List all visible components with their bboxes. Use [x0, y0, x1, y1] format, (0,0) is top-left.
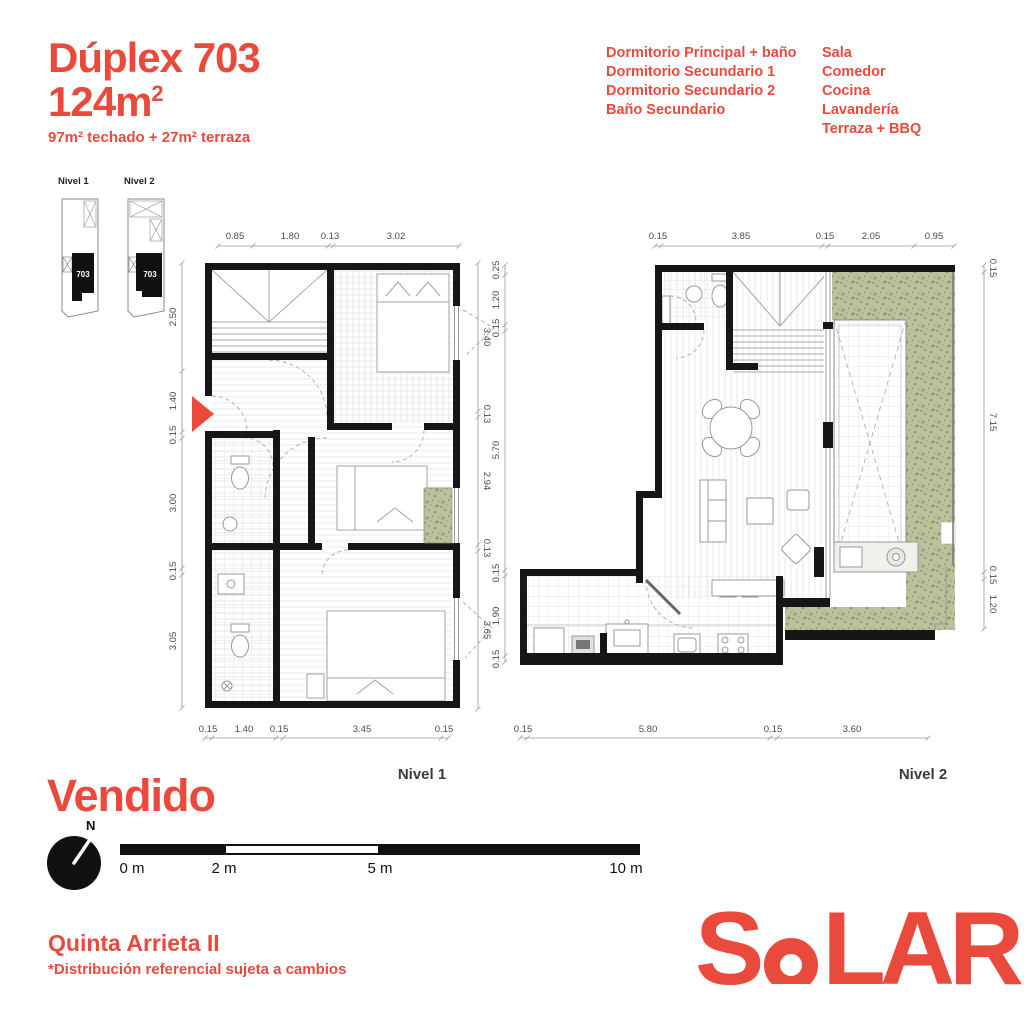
dim-label: 0.15	[764, 724, 783, 735]
feature-list-areas: Sala Comedor Cocina Lavandería Terraza +…	[822, 44, 1002, 139]
unit-number: 703	[76, 270, 90, 279]
feature-item: Lavandería	[822, 101, 1002, 120]
scale-bar: 0 m 2 m 5 m 10 m	[120, 844, 640, 878]
dim-label: 3.02	[387, 231, 406, 242]
logo-letter-s: S	[695, 905, 758, 994]
compass-icon: N	[42, 816, 110, 892]
feature-item: Comedor	[822, 63, 1002, 82]
key-plan-nivel1: Nivel 1 703	[58, 176, 104, 328]
scale-label: 2 m	[211, 860, 236, 877]
feature-item: Cocina	[822, 82, 1002, 101]
dim-label: 2.50	[168, 308, 179, 327]
dim-label: 5.70	[491, 441, 502, 460]
dim-label: 0.95	[925, 231, 944, 242]
bbq-counter	[834, 542, 918, 572]
solar-logo: S LAR	[695, 888, 1018, 994]
dim-label: 1.90	[491, 607, 502, 626]
dim-label: 3.45	[353, 724, 372, 735]
feature-item: Terraza + BBQ	[822, 120, 1002, 139]
area-subtitle: 97m² techado + 27m² terraza	[48, 129, 260, 146]
title-block: Dúplex 703 124m2 97m² techado + 27m² ter…	[48, 36, 260, 146]
project-block: Quinta Arrieta II *Distribución referenc…	[48, 930, 346, 978]
status-badge: Vendido	[47, 770, 215, 822]
scale-label: 5 m	[367, 860, 392, 877]
logo-sun-o-icon	[764, 938, 818, 992]
dim-label: 0.15	[987, 259, 998, 278]
dim-label: 5.80	[639, 724, 658, 735]
dim-label: 2.05	[862, 231, 881, 242]
dim-label: 0.25	[491, 261, 502, 280]
dim-label: 0.15	[491, 564, 502, 583]
dim-label: 1.80	[281, 231, 300, 242]
compass-north-label: N	[86, 818, 95, 833]
scale-label: 0 m	[119, 860, 144, 877]
floorplan-nivel2: 0.15 3.85 0.15 2.05 0.95 0.25 1.20 0.15 …	[488, 226, 1018, 796]
floorplan-nivel1: 0.85 1.80 0.13 3.02 2.50 1.40 0.15 3.00 …	[152, 226, 517, 796]
dim-label: 0.15	[199, 724, 218, 735]
feature-item: Baño Secundario	[606, 101, 816, 120]
dim-label: 1.40	[168, 392, 179, 411]
logo-letters-lar: LAR	[822, 905, 1018, 994]
dim-label: 3.60	[843, 724, 862, 735]
dim-label: 0.15	[270, 724, 289, 735]
feature-item: Dormitorio Secundario 1	[606, 63, 816, 82]
dim-label: 1.40	[235, 724, 254, 735]
dim-label: 0.15	[168, 562, 179, 581]
scale-segment	[380, 844, 640, 855]
dim-label: 0.15	[491, 650, 502, 669]
terrace-deck	[834, 320, 906, 566]
scale-segment	[224, 844, 380, 855]
feature-list-rooms: Dormitorio Principal + baño Dormitorio S…	[606, 44, 816, 120]
dim-label: 7.15	[987, 413, 998, 432]
scale-segment	[120, 844, 224, 855]
key-plan-nivel1-drawing: 703	[58, 191, 104, 323]
floorplan-sheet: Dúplex 703 124m2 97m² techado + 27m² ter…	[0, 0, 1024, 1024]
dim-label: 0.15	[514, 724, 533, 735]
scale-label: 10 m	[609, 860, 642, 877]
dim-label: 0.15	[649, 231, 668, 242]
key-plan-label: Nivel 2	[124, 176, 170, 187]
dim-label: 1.20	[491, 291, 502, 310]
feature-item: Dormitorio Secundario 2	[606, 82, 816, 101]
disclaimer: *Distribución referencial sujeta a cambi…	[48, 961, 346, 978]
plan-label-nivel2: Nivel 2	[899, 766, 947, 783]
feature-item: Dormitorio Principal + baño	[606, 44, 816, 63]
dim-label: 0.13	[321, 231, 340, 242]
dim-label: 0.85	[226, 231, 245, 242]
area-title: 124m2	[48, 80, 260, 124]
planter-green	[424, 488, 452, 543]
key-plan-label: Nivel 1	[58, 176, 104, 187]
dim-label: 3.00	[168, 494, 179, 513]
feature-item: Sala	[822, 44, 1002, 63]
dim-label: 3.85	[732, 231, 751, 242]
dim-label: 0.15	[491, 319, 502, 338]
page-title: Dúplex 703	[48, 36, 260, 80]
plan-label-nivel1: Nivel 1	[398, 766, 446, 783]
dim-label: 0.15	[168, 426, 179, 445]
area-superscript: 2	[151, 81, 162, 106]
project-name: Quinta Arrieta II	[48, 930, 346, 957]
dim-label: 1.20	[987, 595, 998, 614]
dim-label: 0.15	[435, 724, 454, 735]
dim-label: 0.15	[816, 231, 835, 242]
dim-label: 0.15	[987, 566, 998, 585]
dim-label: 3.05	[168, 632, 179, 651]
